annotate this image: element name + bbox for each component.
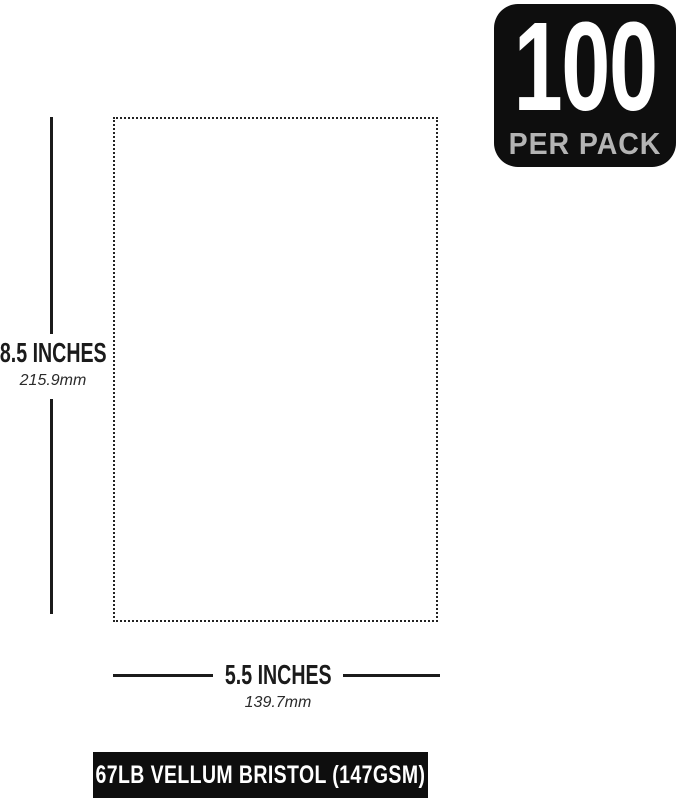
height-measure-line-bottom (50, 399, 53, 614)
width-measure-label: 5.5 INCHES 139.7mm (203, 661, 353, 712)
product-dimension-diagram: 100 PER PACK 8.5 INCHES 215.9mm 5.5 INCH… (0, 0, 679, 801)
width-mm-value: 139.7mm (245, 694, 312, 712)
height-measure-line-top (50, 117, 53, 334)
height-mm-value: 215.9mm (20, 372, 87, 390)
height-measure-label: 8.5 INCHES 215.9mm (0, 339, 106, 390)
paper-type-banner: 67LB VELLUM BRISTOL (147GSM) (93, 752, 428, 798)
paper-outline (113, 117, 438, 622)
per-pack-badge: 100 PER PACK (494, 4, 676, 167)
paper-type-label: 67LB VELLUM BRISTOL (147GSM) (96, 761, 426, 790)
height-inches-value: 8.5 INCHES (0, 339, 106, 367)
width-measure-line-left (113, 674, 213, 677)
width-measure-line-right (343, 674, 440, 677)
width-inches-value: 5.5 INCHES (225, 661, 332, 689)
pack-count: 100 (514, 9, 657, 125)
pack-count-label: PER PACK (509, 126, 662, 162)
